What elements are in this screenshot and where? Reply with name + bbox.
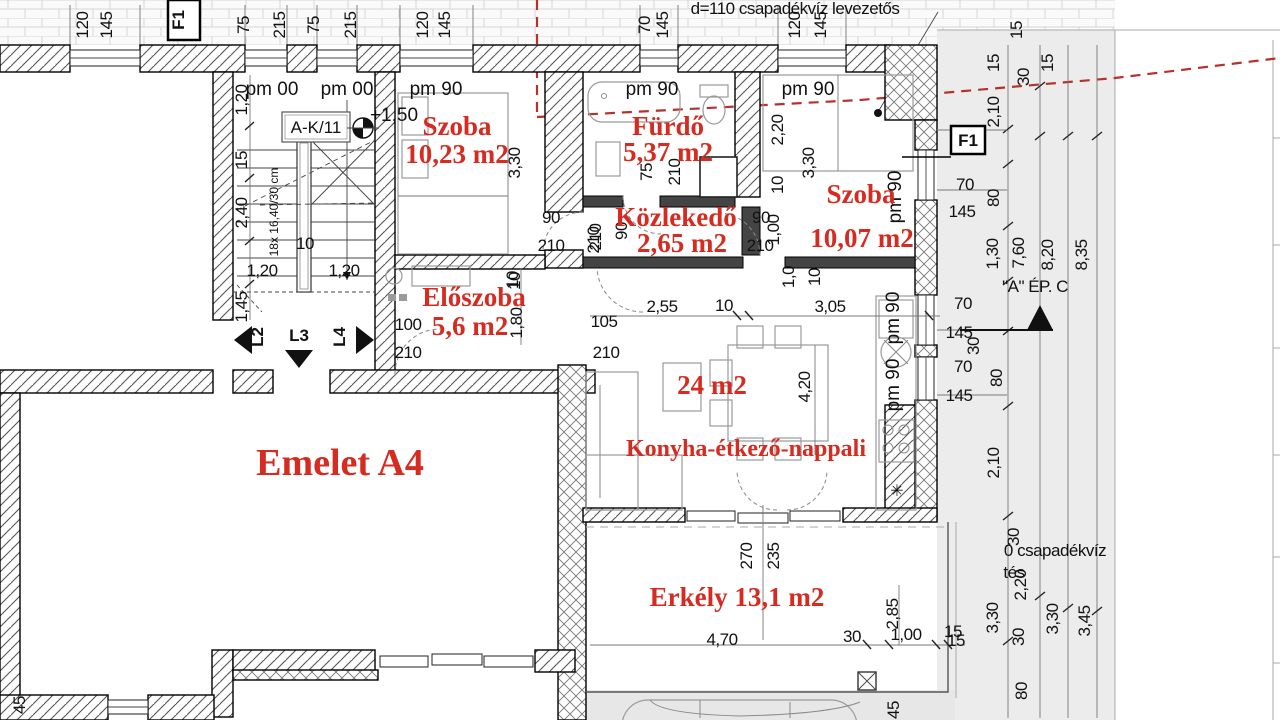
dim-label: 30 (1009, 628, 1028, 646)
exterior-brick-corner (937, 0, 1115, 30)
dim-label: 3,30 (983, 602, 1002, 633)
window (70, 50, 140, 66)
room-area-nappali: 24 m2 (677, 370, 747, 400)
dim-label: 2,20 (768, 114, 787, 145)
dim-label: 70 (954, 357, 972, 376)
room-label-szoba2: Szoba (826, 179, 896, 209)
f1-marker-right: F1 (958, 131, 978, 150)
dim-label: pm 90 (782, 79, 835, 100)
dim-label: 10 (296, 234, 314, 253)
dim-label: 15 (984, 54, 1003, 72)
f1-marker-top: F1 (169, 10, 188, 30)
dim-label: 30 (843, 627, 861, 646)
plan-title: Emelet A4 (256, 442, 424, 484)
dim-label: 1,00 (764, 214, 783, 245)
dim-label: 120 (413, 12, 432, 39)
room-label-szoba1: Szoba (422, 111, 492, 141)
dim-label: d=110 csapadékvíz levezetős (691, 0, 900, 18)
window (778, 50, 846, 66)
dim-label: 4,20 (795, 371, 814, 402)
dim-label: 3,30 (1043, 603, 1062, 634)
dim-label: 3,45 (1075, 605, 1094, 636)
dim-label: 45 (10, 696, 29, 714)
dim-label: 270 (737, 543, 756, 570)
dim-label: 210 (586, 224, 605, 251)
svg-text:✳: ✳ (890, 483, 903, 500)
dim-label: pm 90 (626, 79, 679, 100)
dim-label: 0 csapadékvíz (1004, 541, 1106, 560)
dim-label: 2,40 (232, 197, 251, 228)
dim-label: 210 (395, 343, 422, 362)
dim-label: 1,0 (779, 266, 798, 288)
dim-label: 145 (435, 12, 454, 39)
dim-label: 1,45 (232, 291, 251, 322)
dim-label: 15 (944, 622, 962, 641)
floor-plan-canvas: ✳ (0, 0, 1280, 720)
dim-label: 70 (635, 16, 654, 34)
dim-label: pm 90 (883, 359, 904, 412)
dim-label: 1,80 (507, 307, 526, 338)
dim-label: 80 (987, 369, 1006, 387)
dim-label: L4 (330, 327, 349, 347)
dim-label: 210 (593, 343, 620, 362)
dim-label: L3 (289, 326, 309, 345)
dim-label: 30 (1014, 68, 1033, 86)
dim-label: 80 (1012, 682, 1031, 700)
dim-label: 45 (884, 701, 903, 719)
dim-label: +1,50 (370, 105, 418, 126)
dim-label: pm 00 (321, 79, 374, 100)
dim-label: 10 (715, 296, 733, 315)
dim-label: 120 (73, 12, 92, 39)
dim-label: 30 (964, 337, 983, 355)
dim-label: 215 (270, 12, 289, 39)
dim-label: 2,55 (646, 297, 677, 316)
dim-label: 145 (946, 386, 973, 405)
room-label-erkely: Erkély 13,1 m2 (650, 582, 825, 612)
dim-label: 90 (542, 208, 560, 227)
arrow-down-L3 (285, 350, 313, 368)
room-area-kozlekedo: 2,65 m2 (637, 228, 727, 258)
floor-plan-drawing: ✳ (0, 0, 1280, 720)
window (918, 295, 934, 345)
dim-label: 10 (805, 268, 824, 286)
dim-label: 4,70 (706, 630, 737, 649)
window (317, 50, 357, 66)
bathroom-sink (596, 142, 620, 176)
toilet (700, 85, 728, 124)
dim-label: 105 (591, 312, 618, 331)
dim-label: pm 90 (883, 292, 904, 345)
dim-label: 2,10 (984, 96, 1003, 127)
dim-label: pm 90 (410, 79, 463, 100)
dim-label: 75 (234, 16, 253, 34)
dim-label: 18x 16,40/30 cm (267, 168, 281, 257)
dim-label: pm 00 (246, 79, 299, 100)
room-label-eloszoba: Előszoba (422, 282, 526, 312)
dim-label: 70 (954, 294, 972, 313)
dim-label: 70 (956, 175, 974, 194)
dim-label: 235 (764, 543, 783, 570)
pipe-end-dot (874, 109, 882, 117)
dim-label: tés (1003, 563, 1024, 582)
dim-label: 80 (984, 189, 1003, 207)
dim-label: 2,10 (984, 447, 1003, 478)
window (400, 50, 473, 66)
dim-label: 8,20 (1038, 239, 1057, 270)
window (918, 357, 934, 400)
room-label-nappali: Konyha-étkező-nappali (626, 436, 866, 462)
window (245, 50, 287, 66)
dim-label: 100 (395, 315, 422, 334)
dim-label: L2 (248, 327, 267, 347)
room-area-szoba2: 10,07 m2 (810, 223, 914, 253)
dim-label: 3,05 (814, 297, 845, 316)
room-area-szoba1: 10,23 m2 (405, 139, 509, 169)
dim-label: 15 (232, 151, 251, 169)
window (108, 700, 148, 714)
sliding-window (380, 654, 533, 667)
dim-label: 145 (97, 12, 116, 39)
section-ref-label: A-K/11 (291, 118, 342, 137)
dim-label: 7,60 (1009, 237, 1028, 268)
dim-label: 15 (1038, 54, 1057, 72)
dim-label: 8,35 (1072, 239, 1091, 270)
arrow-right-L4 (356, 326, 374, 354)
balcony-drain (858, 672, 876, 690)
dim-label: 10 (768, 176, 787, 194)
terrace-sliding-door (687, 511, 840, 523)
dim-label: 145 (949, 202, 976, 221)
dim-label: 1,20 (328, 261, 359, 280)
dim-label: 145 (653, 12, 672, 39)
dim-label: 2,85 (883, 598, 902, 629)
dim-label: 1,20 (246, 261, 277, 280)
dim-label: "A" ÉP. C (1002, 277, 1068, 296)
dim-label: 75 (304, 16, 323, 34)
dim-label: 3,30 (799, 147, 818, 178)
dim-label: 215 (341, 12, 360, 39)
dim-label: 210 (538, 236, 565, 255)
dim-label: 15 (1007, 21, 1026, 39)
dim-label: 1,20 (232, 84, 251, 115)
window (640, 50, 678, 66)
room-area-eloszoba: 5,6 m2 (432, 311, 509, 341)
dim-label: 1,30 (983, 238, 1002, 269)
room-area-furdo: 5,37 m2 (623, 137, 713, 167)
